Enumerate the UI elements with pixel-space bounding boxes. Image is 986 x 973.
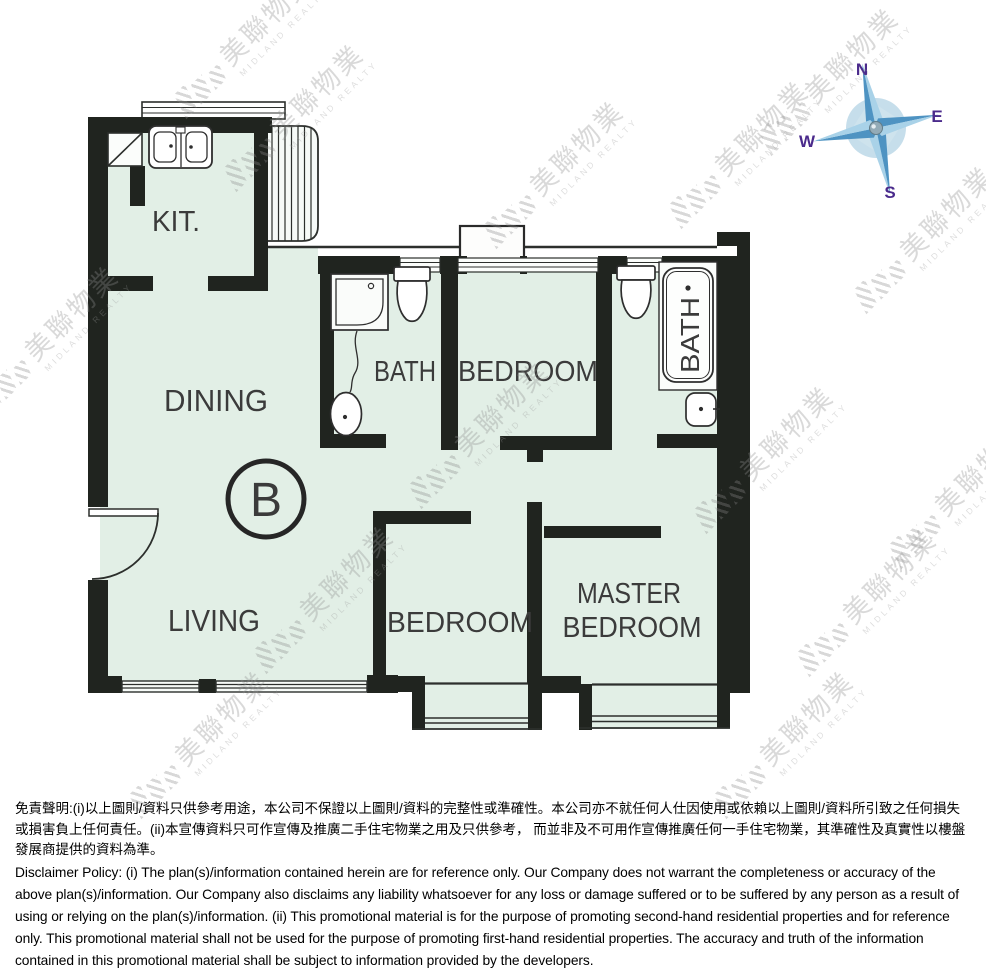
louvre-platform <box>266 126 318 241</box>
floor-plan: B KIT. DINING LIVING BATH BEDROOM BATH B… <box>0 0 986 790</box>
disclaimer-english: Disclaimer Policy: (i) The plan(s)/infor… <box>15 862 973 973</box>
duct-box <box>460 226 524 262</box>
label-living: LIVING <box>168 603 260 638</box>
unit-marker-label: B <box>250 474 282 527</box>
living-windows <box>122 681 367 692</box>
label-bedroom: BEDROOM <box>458 356 598 388</box>
label-kitchen: KIT. <box>152 206 200 238</box>
label-bath-ensuite: BATH <box>675 297 705 373</box>
compass-rose-icon: N E W S <box>799 50 953 208</box>
compass-e: E <box>931 107 942 126</box>
label-bedroom2: BEDROOM <box>387 607 533 639</box>
kitchen-window <box>142 102 285 119</box>
compass-w: W <box>799 132 816 151</box>
label-bath: BATH <box>374 356 436 388</box>
corner-duct <box>108 133 142 166</box>
wash-basin <box>331 393 362 436</box>
compass-n: N <box>856 60 868 79</box>
label-master-1: MASTER <box>577 578 681 610</box>
label-master-2: BEDROOM <box>563 612 702 644</box>
disclaimer-chinese: 免責聲明:(i)以上圖則/資料只供參考用途，本公司不保證以上圖則/資料的完整性或… <box>15 799 973 861</box>
disclaimer: 免責聲明:(i)以上圖則/資料只供參考用途，本公司不保證以上圖則/資料的完整性或… <box>15 799 973 973</box>
wash-basin-ensuite <box>686 393 720 426</box>
shower <box>331 274 388 330</box>
kitchen-sink <box>149 126 212 168</box>
compass-s: S <box>884 183 895 202</box>
label-dining: DINING <box>164 383 268 418</box>
